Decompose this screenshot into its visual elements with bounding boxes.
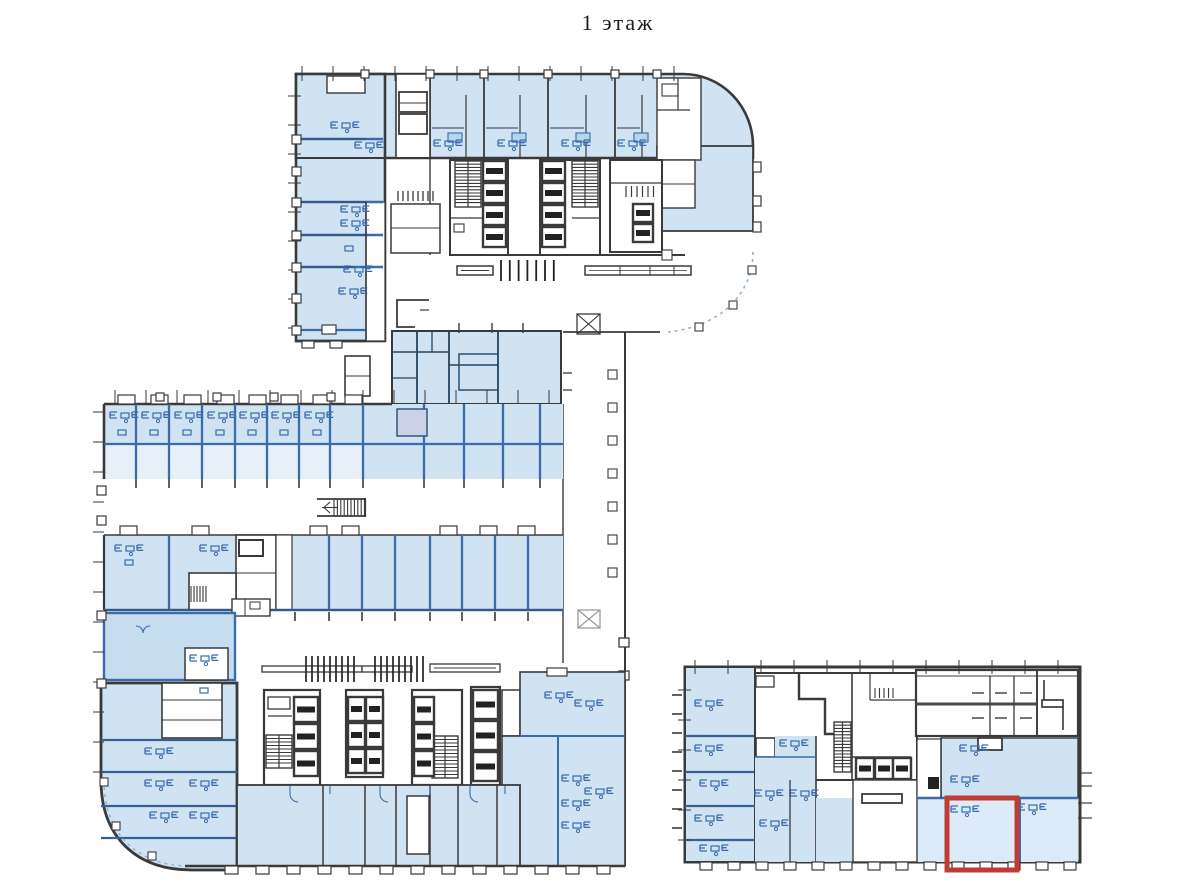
- svg-text:1 этаж: 1 этаж: [582, 10, 655, 35]
